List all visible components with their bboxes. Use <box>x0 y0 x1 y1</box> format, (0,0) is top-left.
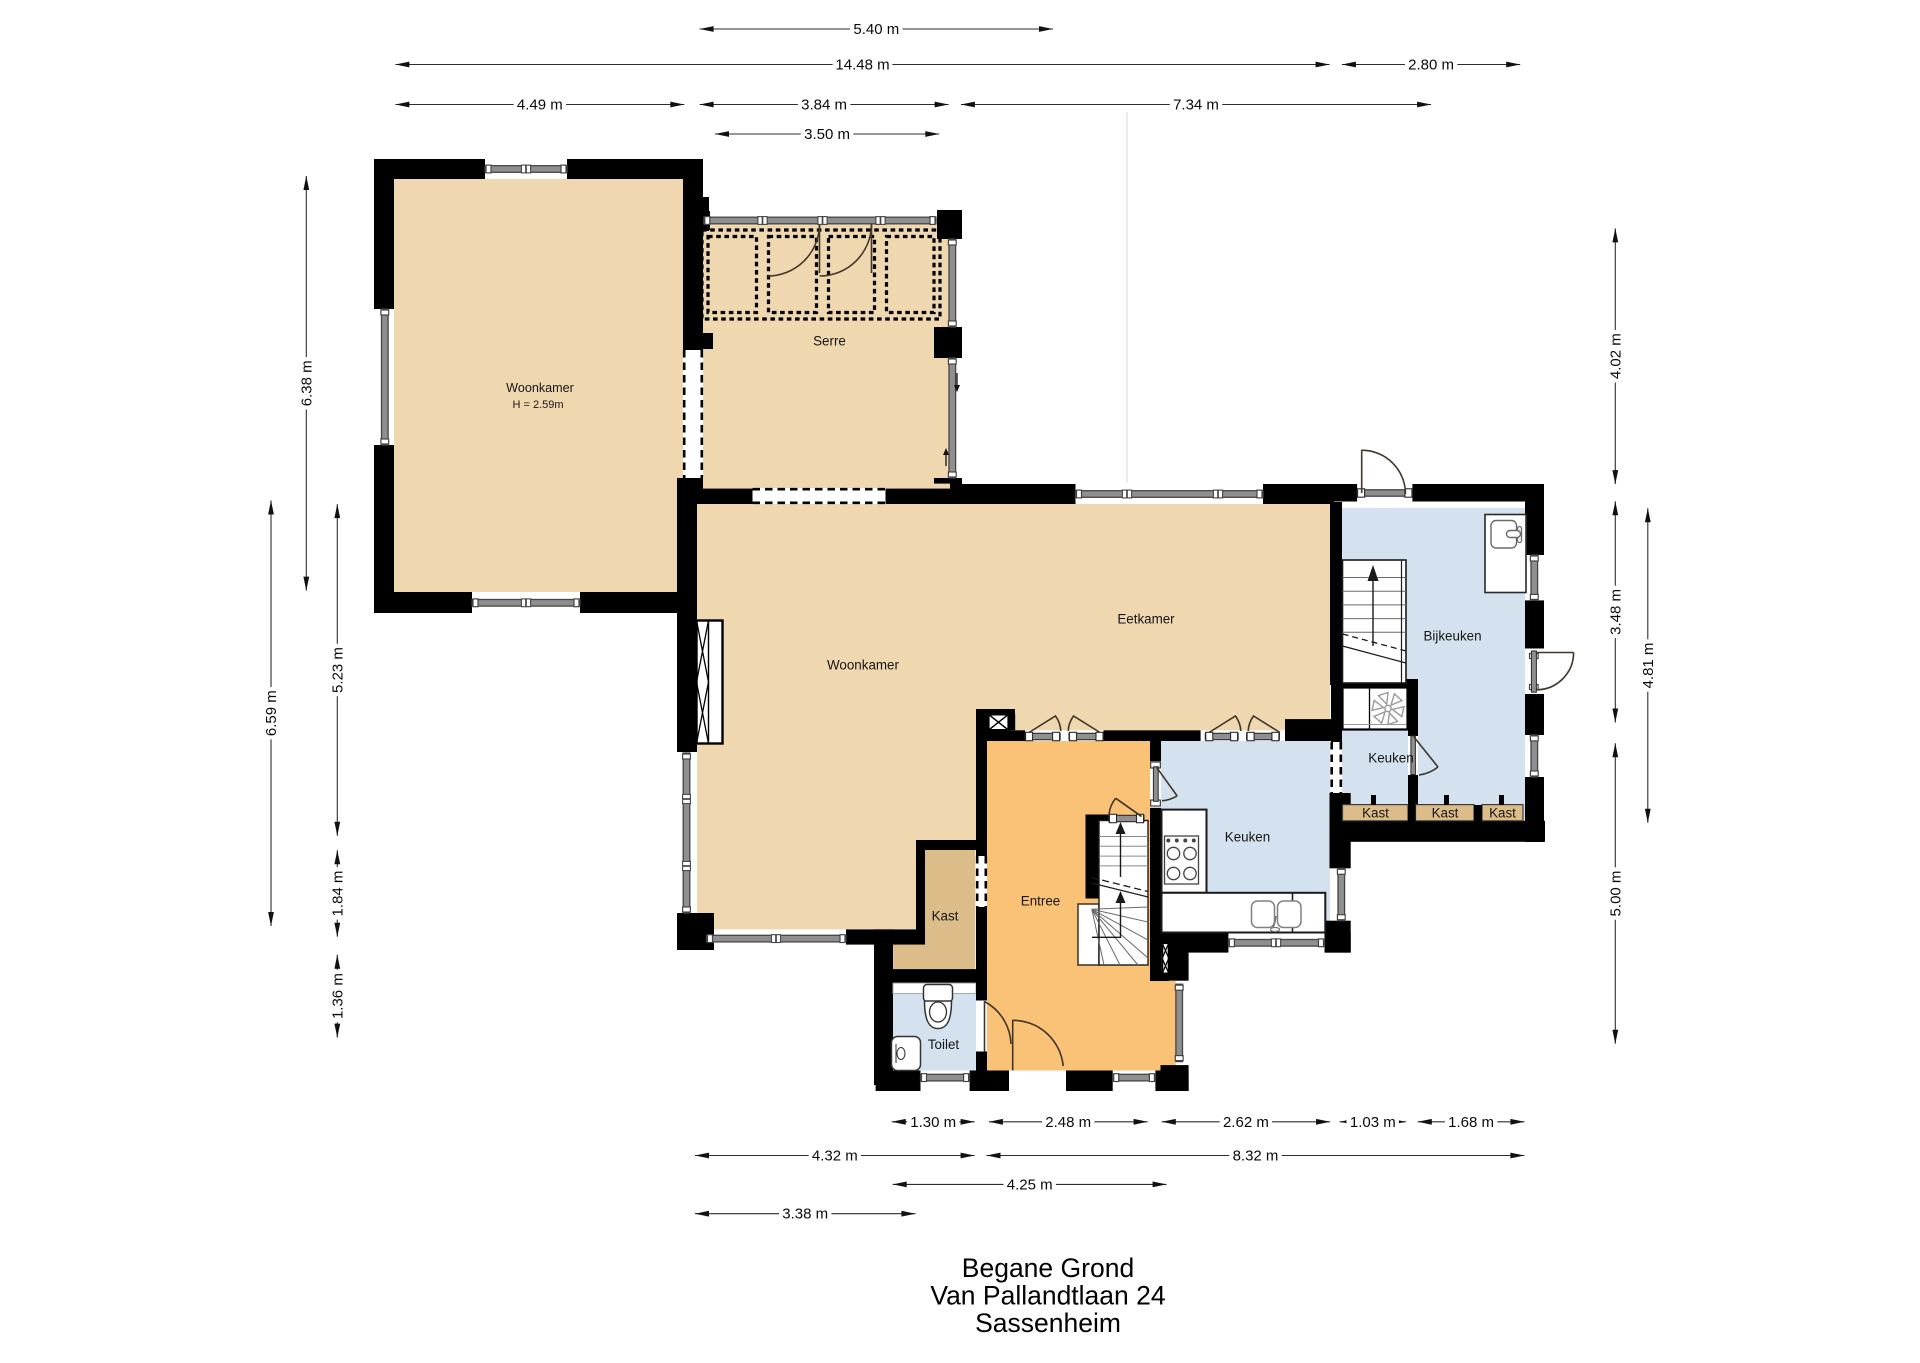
svg-text:4.32 m: 4.32 m <box>812 1148 858 1165</box>
svg-text:6.38 m: 6.38 m <box>298 360 315 406</box>
svg-text:5.40 m: 5.40 m <box>853 21 899 38</box>
svg-text:1.68 m: 1.68 m <box>1448 1114 1494 1131</box>
svg-text:Keuken: Keuken <box>1368 751 1413 766</box>
svg-text:3.84 m: 3.84 m <box>801 97 847 114</box>
svg-text:6.59 m: 6.59 m <box>263 690 280 736</box>
svg-text:2.62 m: 2.62 m <box>1223 1114 1269 1131</box>
svg-text:3.38 m: 3.38 m <box>782 1206 828 1223</box>
svg-text:H = 2.59m: H = 2.59m <box>512 399 563 411</box>
svg-text:Kast: Kast <box>1489 806 1516 821</box>
svg-text:Serre: Serre <box>813 334 846 349</box>
svg-text:3.48 m: 3.48 m <box>1607 589 1624 635</box>
svg-text:Entree: Entree <box>1021 894 1060 909</box>
svg-text:2.80 m: 2.80 m <box>1408 57 1454 74</box>
svg-text:Kast: Kast <box>1362 806 1389 821</box>
svg-text:7.34 m: 7.34 m <box>1173 97 1219 114</box>
svg-text:1.30 m: 1.30 m <box>910 1114 956 1131</box>
svg-text:Woonkamer: Woonkamer <box>827 658 899 673</box>
svg-text:5.23 m: 5.23 m <box>329 647 346 693</box>
svg-text:4.25 m: 4.25 m <box>1007 1176 1053 1193</box>
svg-text:5.00 m: 5.00 m <box>1607 871 1624 917</box>
svg-text:1.84 m: 1.84 m <box>329 871 346 917</box>
svg-text:Sassenheim: Sassenheim <box>975 1308 1121 1338</box>
svg-text:2.48 m: 2.48 m <box>1045 1114 1091 1131</box>
svg-text:Woonkamer: Woonkamer <box>506 381 574 395</box>
svg-text:Keuken: Keuken <box>1225 830 1270 845</box>
svg-text:3.50 m: 3.50 m <box>804 126 850 143</box>
svg-text:Eetkamer: Eetkamer <box>1117 612 1175 627</box>
svg-text:Kast: Kast <box>932 909 959 924</box>
svg-text:4.02 m: 4.02 m <box>1607 333 1624 379</box>
svg-text:4.81 m: 4.81 m <box>1640 643 1657 689</box>
svg-text:1.03 m: 1.03 m <box>1350 1114 1396 1131</box>
svg-text:8.32 m: 8.32 m <box>1233 1148 1279 1165</box>
svg-text:Toilet: Toilet <box>928 1037 960 1052</box>
svg-text:Kast: Kast <box>1432 806 1459 821</box>
svg-text:Begane Grond: Begane Grond <box>962 1253 1134 1283</box>
svg-text:4.49 m: 4.49 m <box>517 97 563 114</box>
svg-text:Bijkeuken: Bijkeuken <box>1423 629 1481 644</box>
svg-text:1.36 m: 1.36 m <box>329 973 346 1019</box>
svg-text:14.48 m: 14.48 m <box>835 57 889 74</box>
svg-text:Van Pallandtlaan 24: Van Pallandtlaan 24 <box>930 1281 1165 1311</box>
